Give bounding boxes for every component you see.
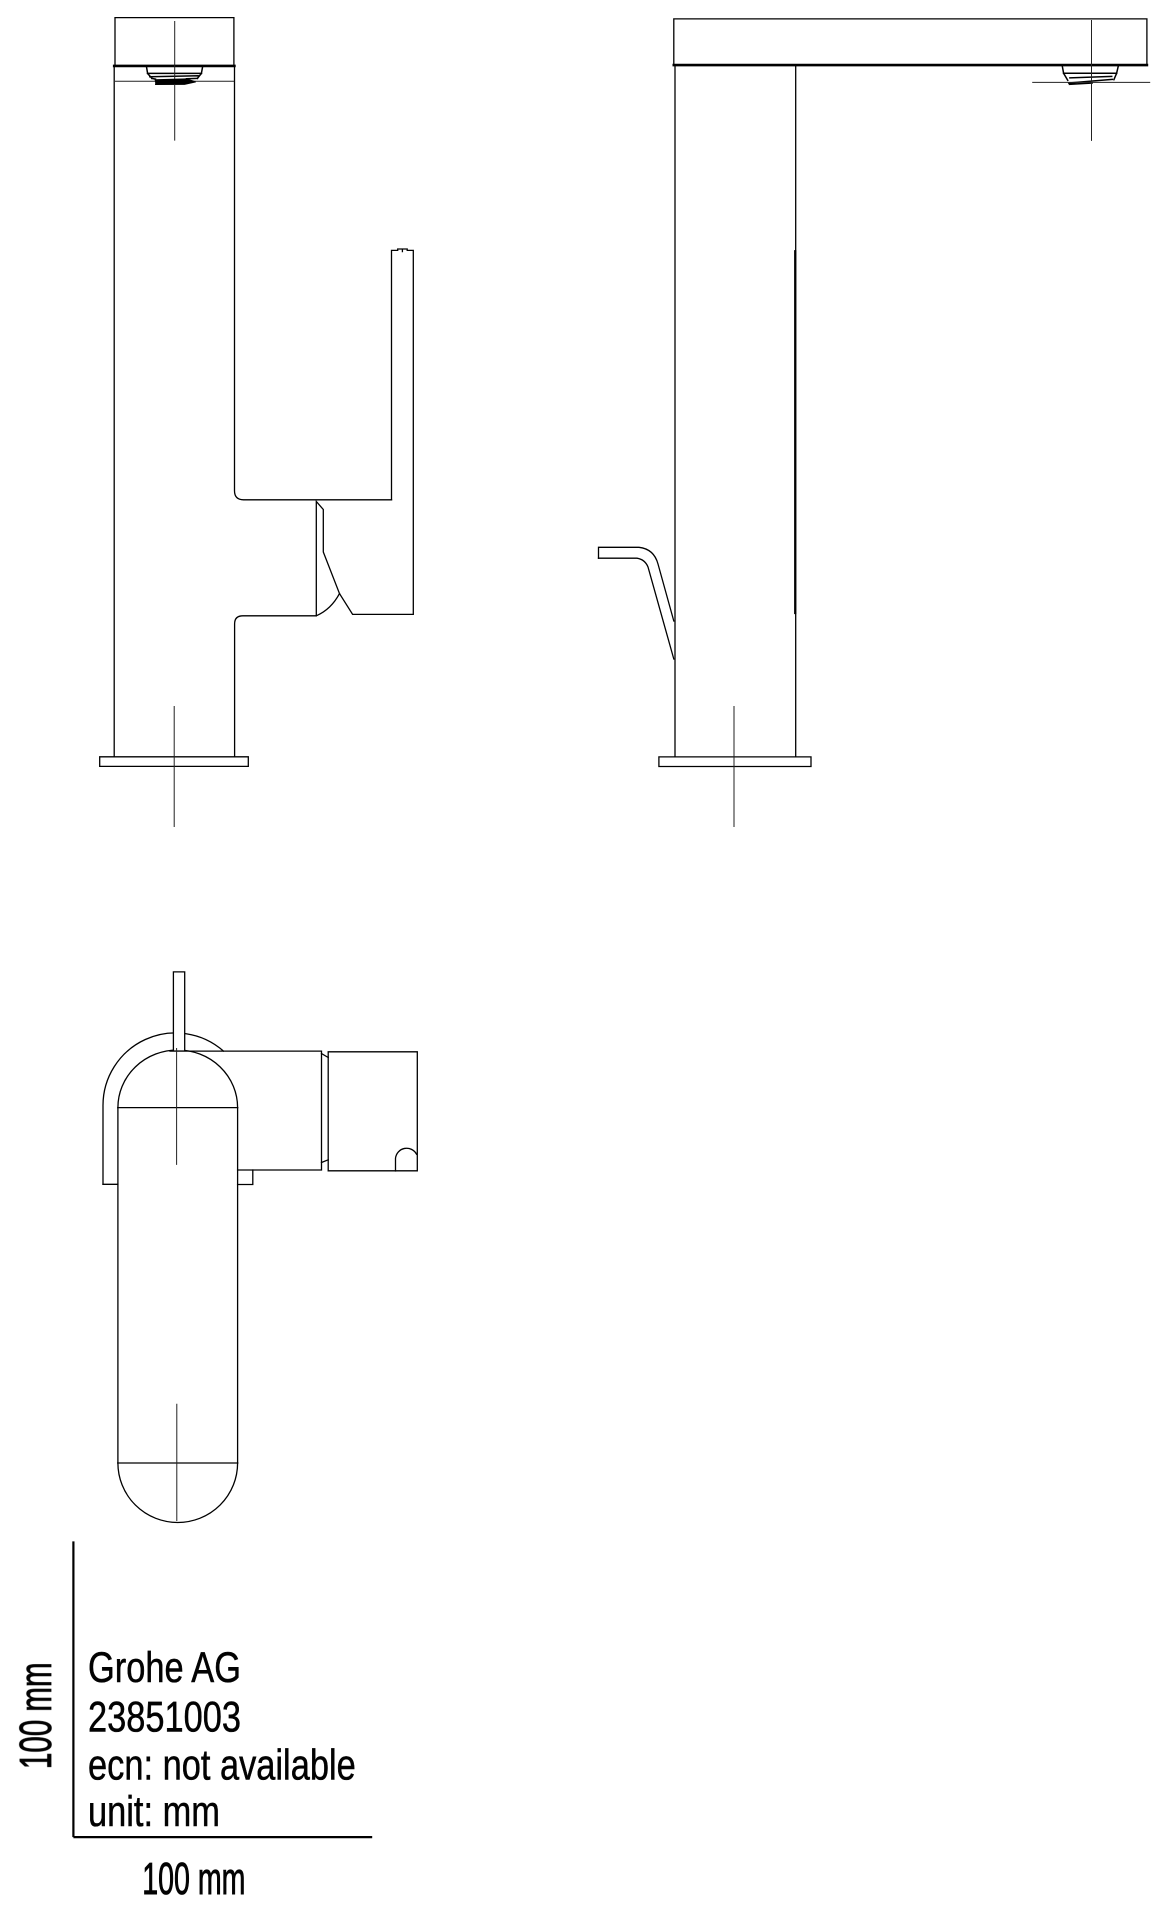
svg-text:ecn: not available: ecn: not available	[88, 1741, 356, 1789]
svg-text:100 mm: 100 mm	[142, 1853, 245, 1904]
svg-text:100 mm: 100 mm	[10, 1663, 61, 1769]
svg-text:unit: mm: unit: mm	[88, 1788, 220, 1836]
svg-text:23851003: 23851003	[88, 1693, 241, 1741]
svg-text:Grohe AG: Grohe AG	[88, 1644, 241, 1692]
